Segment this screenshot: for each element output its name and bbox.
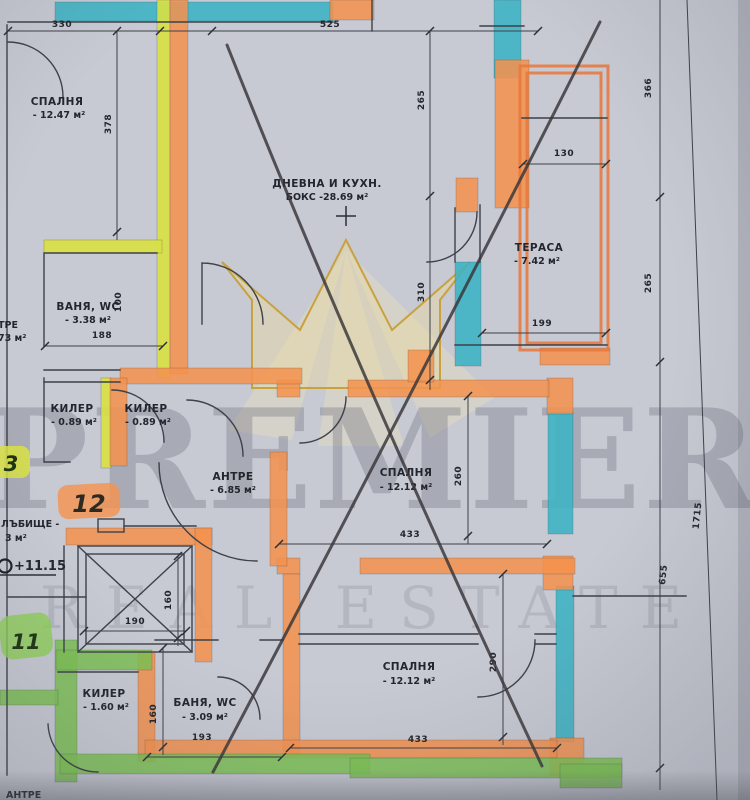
- bottom-shadow: [0, 770, 750, 800]
- right-edge-shadow: [738, 0, 750, 800]
- vignette-overlay: [0, 0, 750, 800]
- floor-plan-photo: PREMIER REAL ESTATE: [0, 0, 750, 800]
